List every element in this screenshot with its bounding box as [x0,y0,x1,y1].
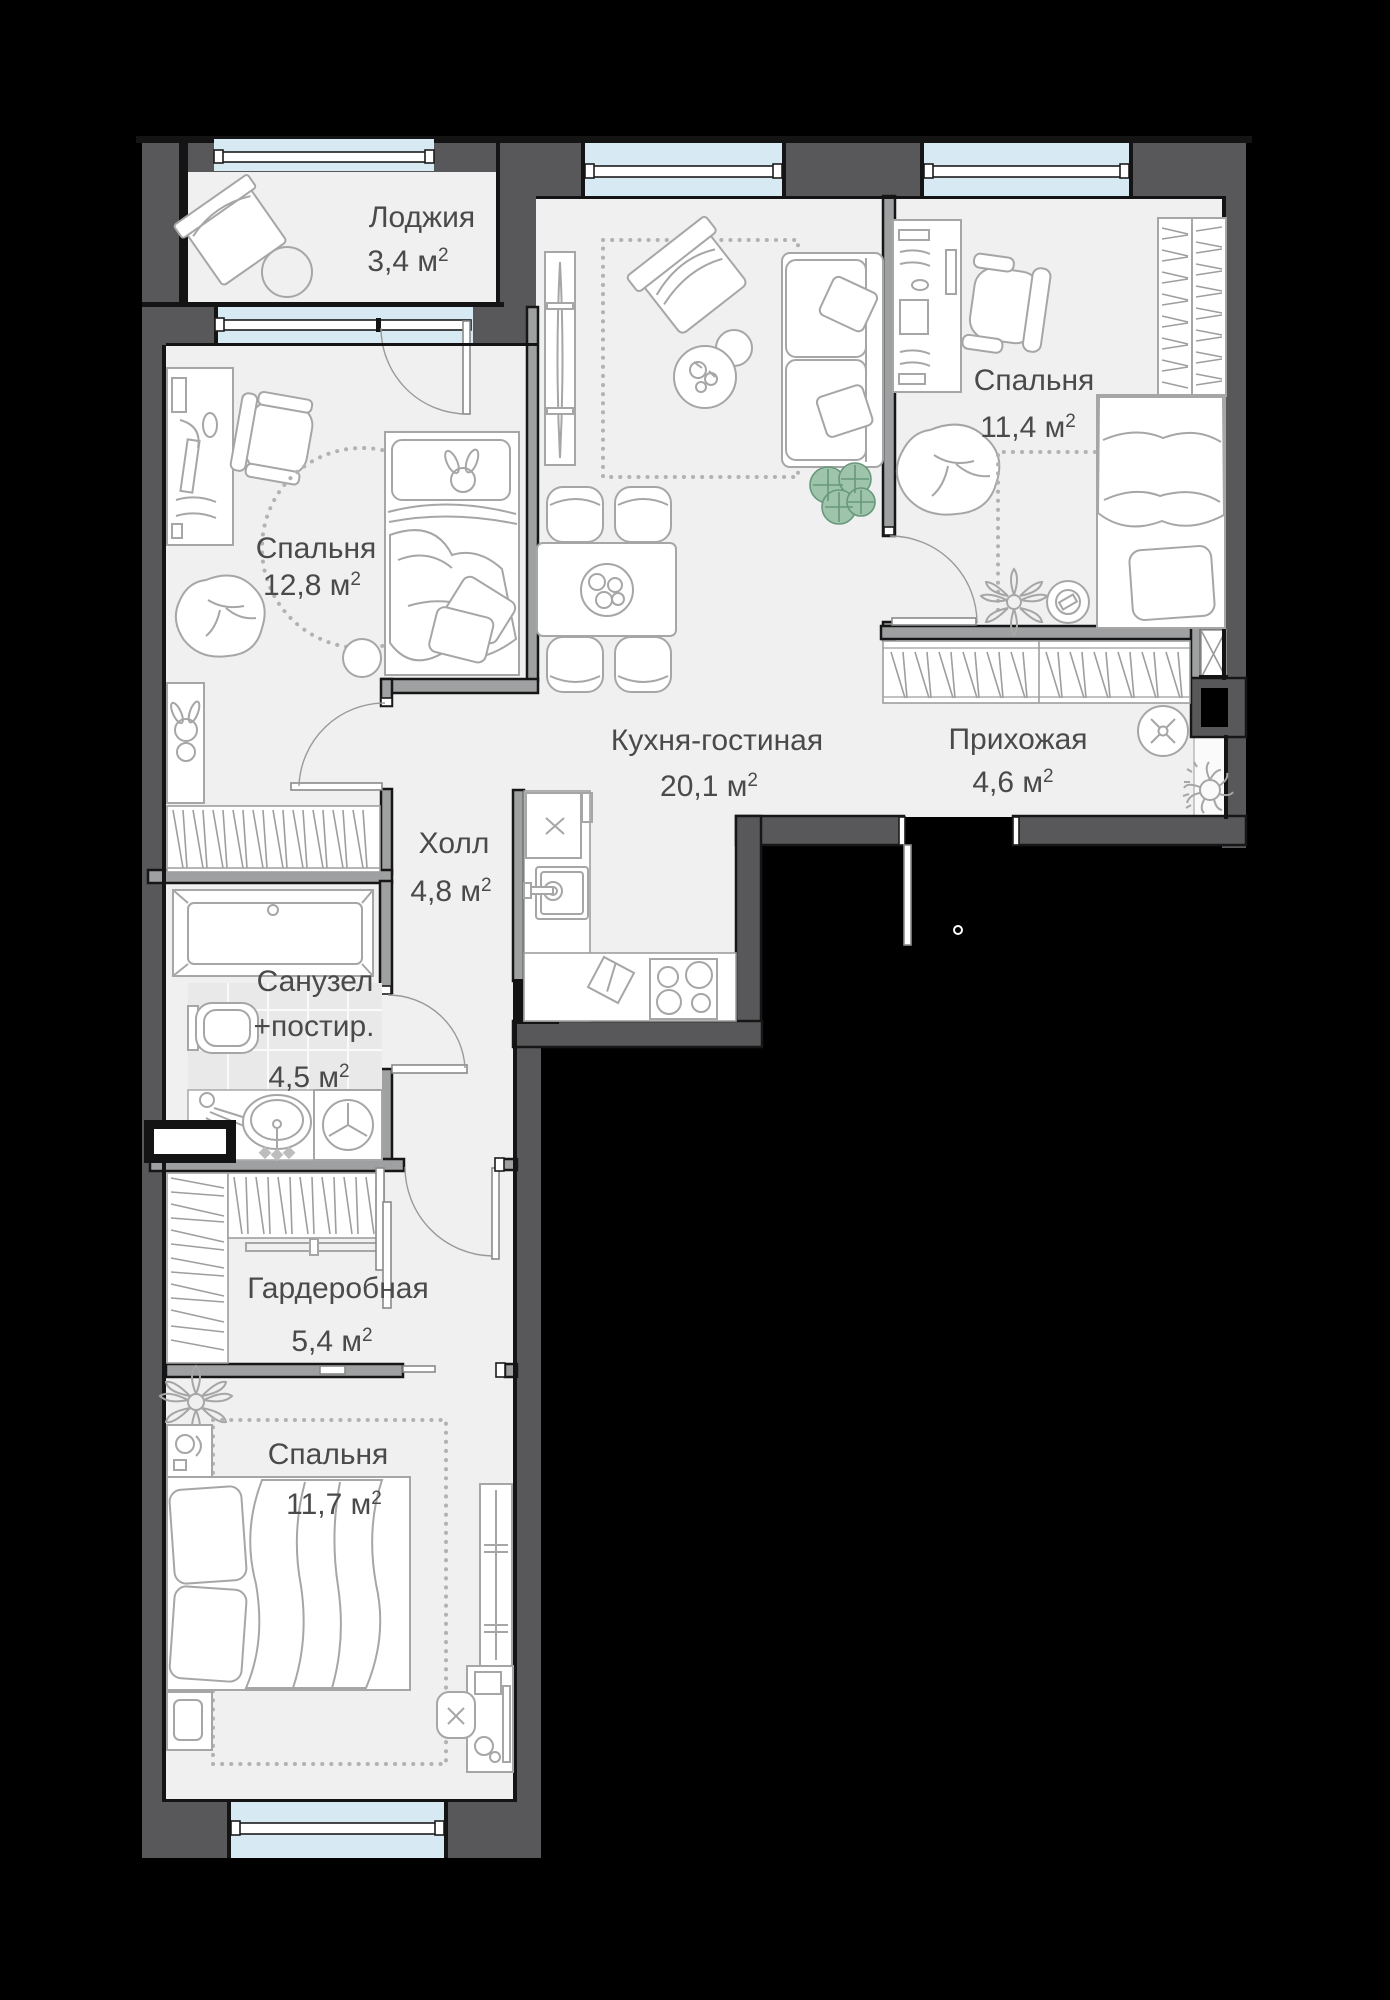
svg-text:Прихожая: Прихожая [948,723,1087,756]
svg-text:Спальня: Спальня [974,364,1095,397]
svg-text:4,8 м2: 4,8 м2 [410,875,491,908]
svg-text:11,4 м2: 11,4 м2 [980,411,1076,444]
svg-text:Санузел: Санузел [257,965,374,998]
svg-text:+постир.: +постир. [254,1010,375,1043]
svg-text:11,7 м2: 11,7 м2 [286,1488,382,1521]
svg-text:3,4 м2: 3,4 м2 [367,245,448,278]
svg-text:4,5 м2: 4,5 м2 [268,1061,349,1094]
svg-text:Лоджия: Лоджия [369,201,475,234]
svg-text:Гардеробная: Гардеробная [247,1272,428,1305]
svg-text:5,4 м2: 5,4 м2 [291,1325,372,1358]
svg-text:Кухня-гостиная: Кухня-гостиная [611,724,823,757]
svg-text:Спальня: Спальня [256,532,377,565]
svg-text:20,1 м2: 20,1 м2 [660,770,758,803]
svg-text:12,8 м2: 12,8 м2 [263,569,361,602]
svg-text:Холл: Холл [419,827,490,860]
svg-text:4,6 м2: 4,6 м2 [972,766,1053,799]
svg-text:Спальня: Спальня [268,1438,389,1471]
